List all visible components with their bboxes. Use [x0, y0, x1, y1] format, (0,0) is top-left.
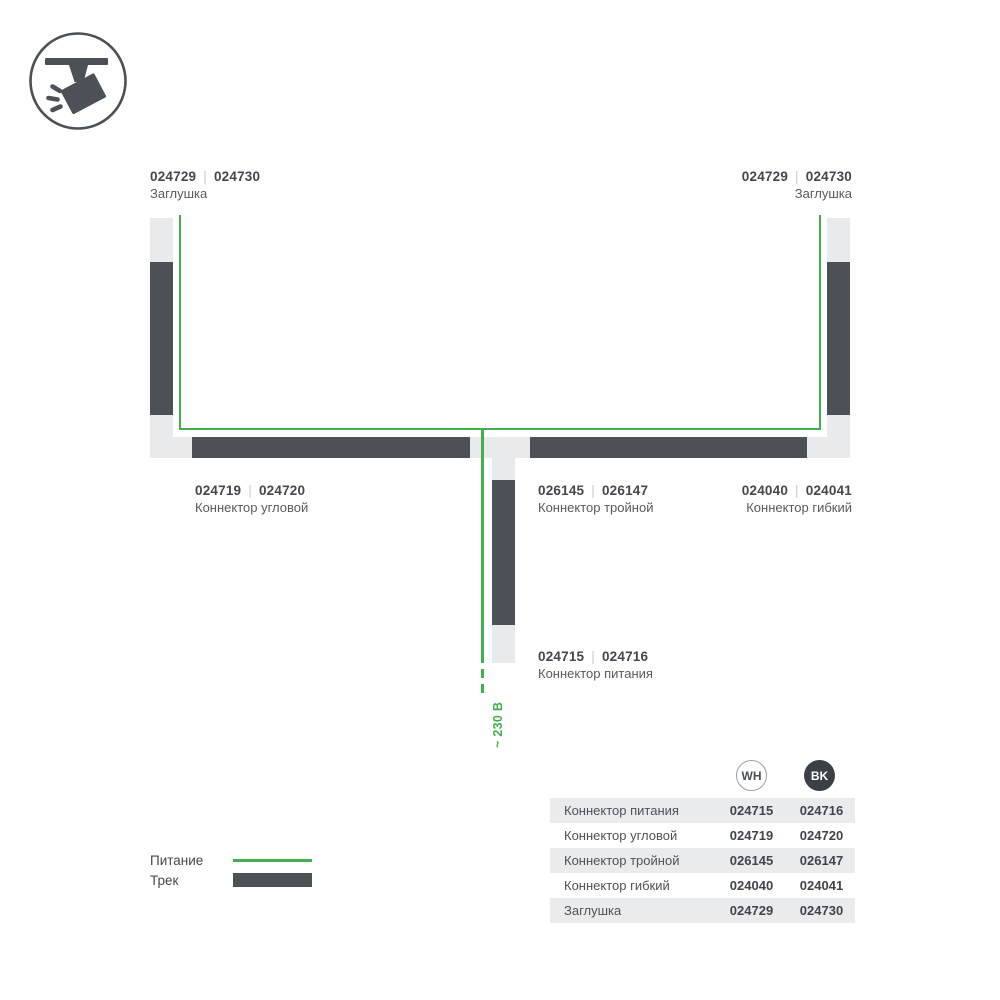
- triple-connector-shape-top: [470, 437, 530, 458]
- row-code-wh: 026145: [715, 853, 788, 868]
- row-code-bk: 024720: [788, 828, 855, 843]
- code-wh: 026145: [538, 483, 584, 498]
- table-row: Коннектор угловой 024719 024720: [550, 823, 855, 848]
- product-codes: 024040|024041: [742, 483, 852, 498]
- label-endcap-right: 024729|024730 Заглушка: [742, 169, 852, 201]
- power-line-right: [819, 215, 821, 430]
- track-center-vertical: [492, 480, 515, 625]
- code-bk: 026147: [602, 483, 648, 498]
- row-code-wh: 024729: [715, 903, 788, 918]
- code-wh: 024729: [150, 169, 196, 184]
- label-endcap-left: 024729|024730 Заглушка: [150, 169, 260, 201]
- track-right-vertical: [827, 262, 850, 415]
- corner-right-shape-horizontal: [807, 437, 827, 458]
- product-name: Коннектор тройной: [538, 500, 653, 515]
- code-wh: 024729: [742, 169, 788, 184]
- row-name: Коннектор угловой: [550, 828, 715, 843]
- legend-power-swatch: [233, 859, 312, 862]
- legend-power-label: Питание: [150, 853, 203, 868]
- row-code-wh: 024715: [715, 803, 788, 818]
- color-badge-bk: BK: [804, 760, 835, 791]
- power-line-bottom: [179, 428, 821, 430]
- code-wh: 024719: [195, 483, 241, 498]
- product-name: Коннектор гибкий: [742, 500, 852, 515]
- code-separator: |: [584, 649, 602, 664]
- row-code-wh: 024040: [715, 878, 788, 893]
- row-code-wh: 024719: [715, 828, 788, 843]
- product-codes: 026145|026147: [538, 483, 653, 498]
- product-name: Заглушка: [150, 186, 260, 201]
- code-separator: |: [584, 483, 602, 498]
- code-bk: 024716: [602, 649, 648, 664]
- row-code-bk: 024716: [788, 803, 855, 818]
- label-power-connector: 024715|024716 Коннектор питания: [538, 649, 653, 681]
- corner-right-shape-vertical: [827, 415, 850, 458]
- track-spotlight-icon: [28, 31, 128, 131]
- code-bk: 024720: [259, 483, 305, 498]
- track-bottom-right: [530, 437, 807, 458]
- row-code-bk: 024730: [788, 903, 855, 918]
- page: ~ 230 В 024729|024730 Заглушка 024729|02…: [0, 0, 1000, 1000]
- color-badge-wh: WH: [736, 760, 767, 791]
- label-flexible-connector: 024040|024041 Коннектор гибкий: [742, 483, 852, 515]
- power-connector-shape: [492, 625, 515, 663]
- code-separator: |: [788, 169, 806, 184]
- endcap-left-shape: [150, 218, 173, 262]
- corner-left-shape-horizontal: [173, 437, 192, 458]
- row-name: Коннектор гибкий: [550, 878, 715, 893]
- endcap-right-shape: [827, 218, 850, 262]
- power-line-left: [179, 215, 181, 430]
- label-corner-connector: 024719|024720 Коннектор угловой: [195, 483, 308, 515]
- track-bottom-left: [192, 437, 470, 458]
- product-codes: 024719|024720: [195, 483, 308, 498]
- product-name: Заглушка: [742, 186, 852, 201]
- code-wh: 024715: [538, 649, 584, 664]
- table-header: WH BK: [550, 758, 855, 798]
- table-row: Заглушка 024729 024730: [550, 898, 855, 923]
- product-codes: 024729|024730: [150, 169, 260, 184]
- table-body: Коннектор питания 024715 024716 Коннекто…: [550, 798, 855, 923]
- row-name: Коннектор питания: [550, 803, 715, 818]
- voltage-label: ~ 230 В: [491, 682, 505, 748]
- row-code-bk: 024041: [788, 878, 855, 893]
- label-triple-connector: 026145|026147 Коннектор тройной: [538, 483, 653, 515]
- power-line-dash: [481, 669, 484, 678]
- product-codes: 024715|024716: [538, 649, 653, 664]
- row-name: Заглушка: [550, 903, 715, 918]
- code-wh: 024040: [742, 483, 788, 498]
- triple-connector-shape-stem: [492, 458, 515, 480]
- product-table: WH BK Коннектор питания 024715 024716 Ко…: [550, 758, 855, 923]
- code-separator: |: [788, 483, 806, 498]
- code-separator: |: [241, 483, 259, 498]
- table-row: Коннектор питания 024715 024716: [550, 798, 855, 823]
- code-bk: 024730: [214, 169, 260, 184]
- code-separator: |: [196, 169, 214, 184]
- code-bk: 024041: [806, 483, 852, 498]
- product-name: Коннектор угловой: [195, 500, 308, 515]
- track-left-vertical: [150, 262, 173, 415]
- row-code-bk: 026147: [788, 853, 855, 868]
- table-row: Коннектор гибкий 024040 024041: [550, 873, 855, 898]
- legend-track-swatch: [233, 873, 312, 887]
- product-name: Коннектор питания: [538, 666, 653, 681]
- corner-left-shape-vertical: [150, 415, 173, 458]
- row-name: Коннектор тройной: [550, 853, 715, 868]
- table-row: Коннектор тройной 026145 026147: [550, 848, 855, 873]
- product-codes: 024729|024730: [742, 169, 852, 184]
- legend-track-label: Трек: [150, 873, 178, 888]
- code-bk: 024730: [806, 169, 852, 184]
- power-line-feed: [481, 428, 484, 663]
- power-line-dash: [481, 684, 484, 693]
